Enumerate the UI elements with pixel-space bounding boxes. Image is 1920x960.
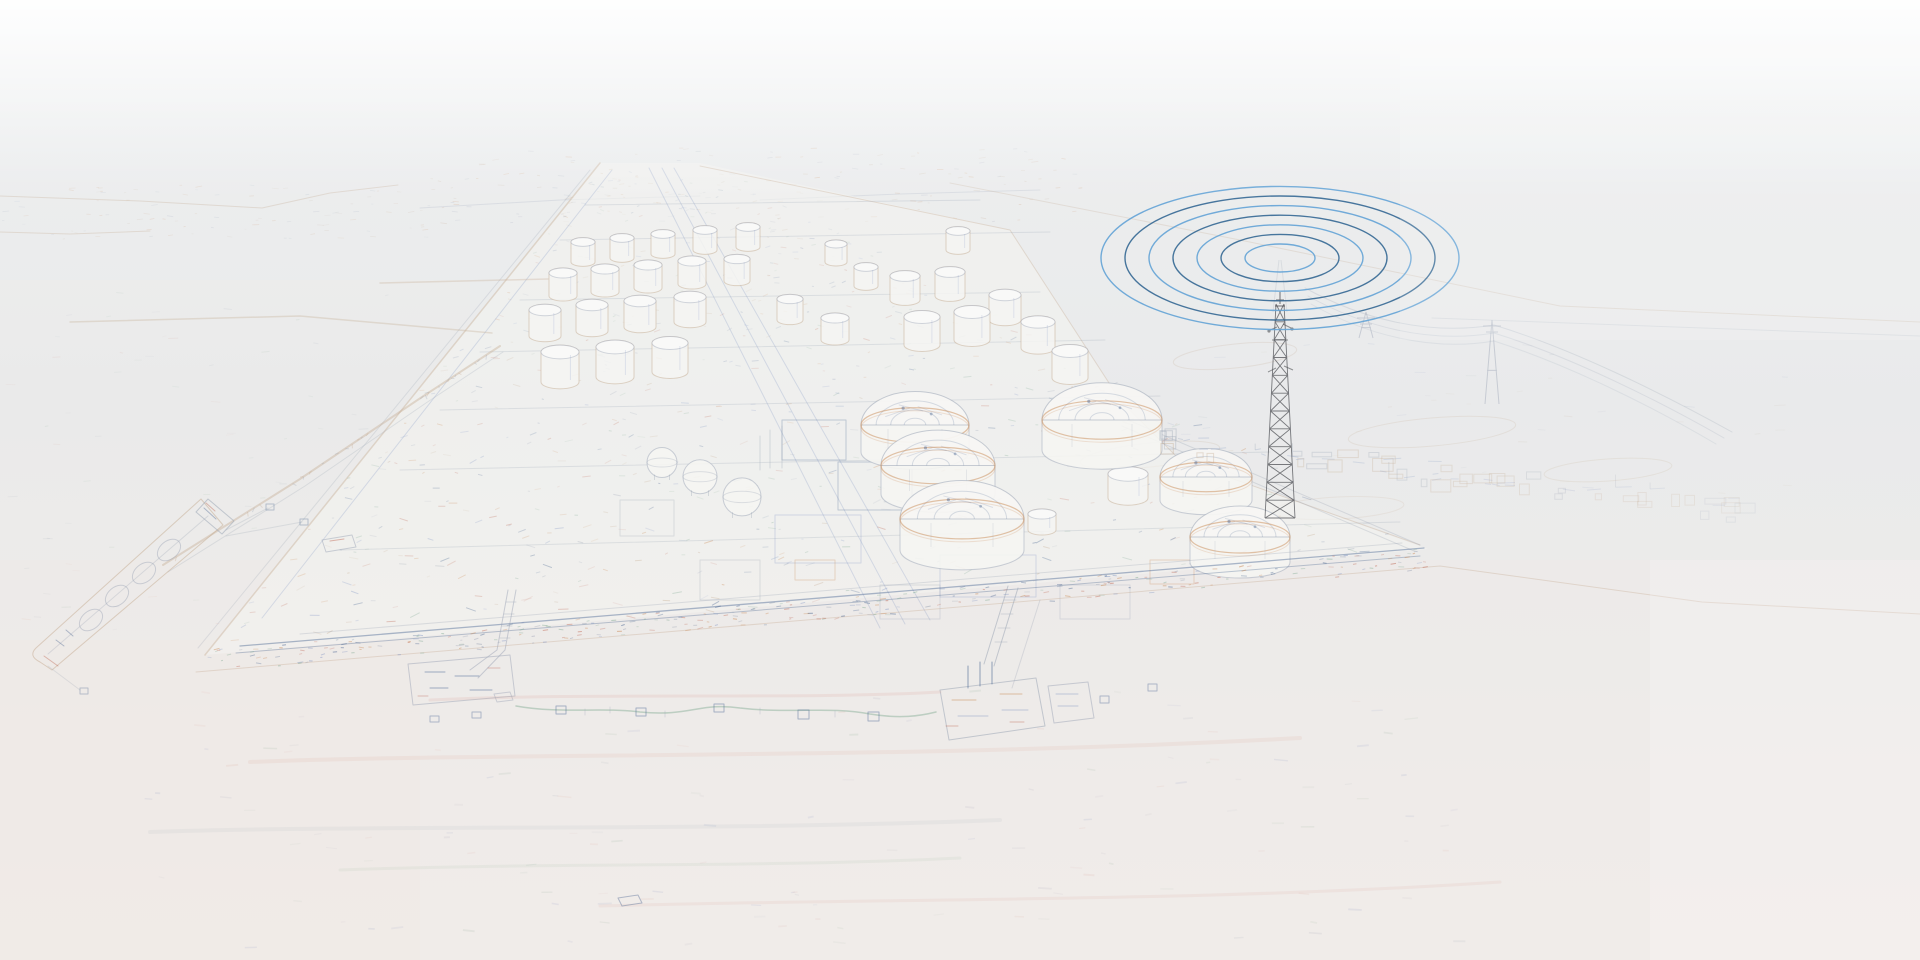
lng-terminal-sketch-page — [0, 0, 1920, 960]
aerial-plant-sketch — [0, 0, 1920, 960]
haze-overlay — [0, 0, 1920, 960]
